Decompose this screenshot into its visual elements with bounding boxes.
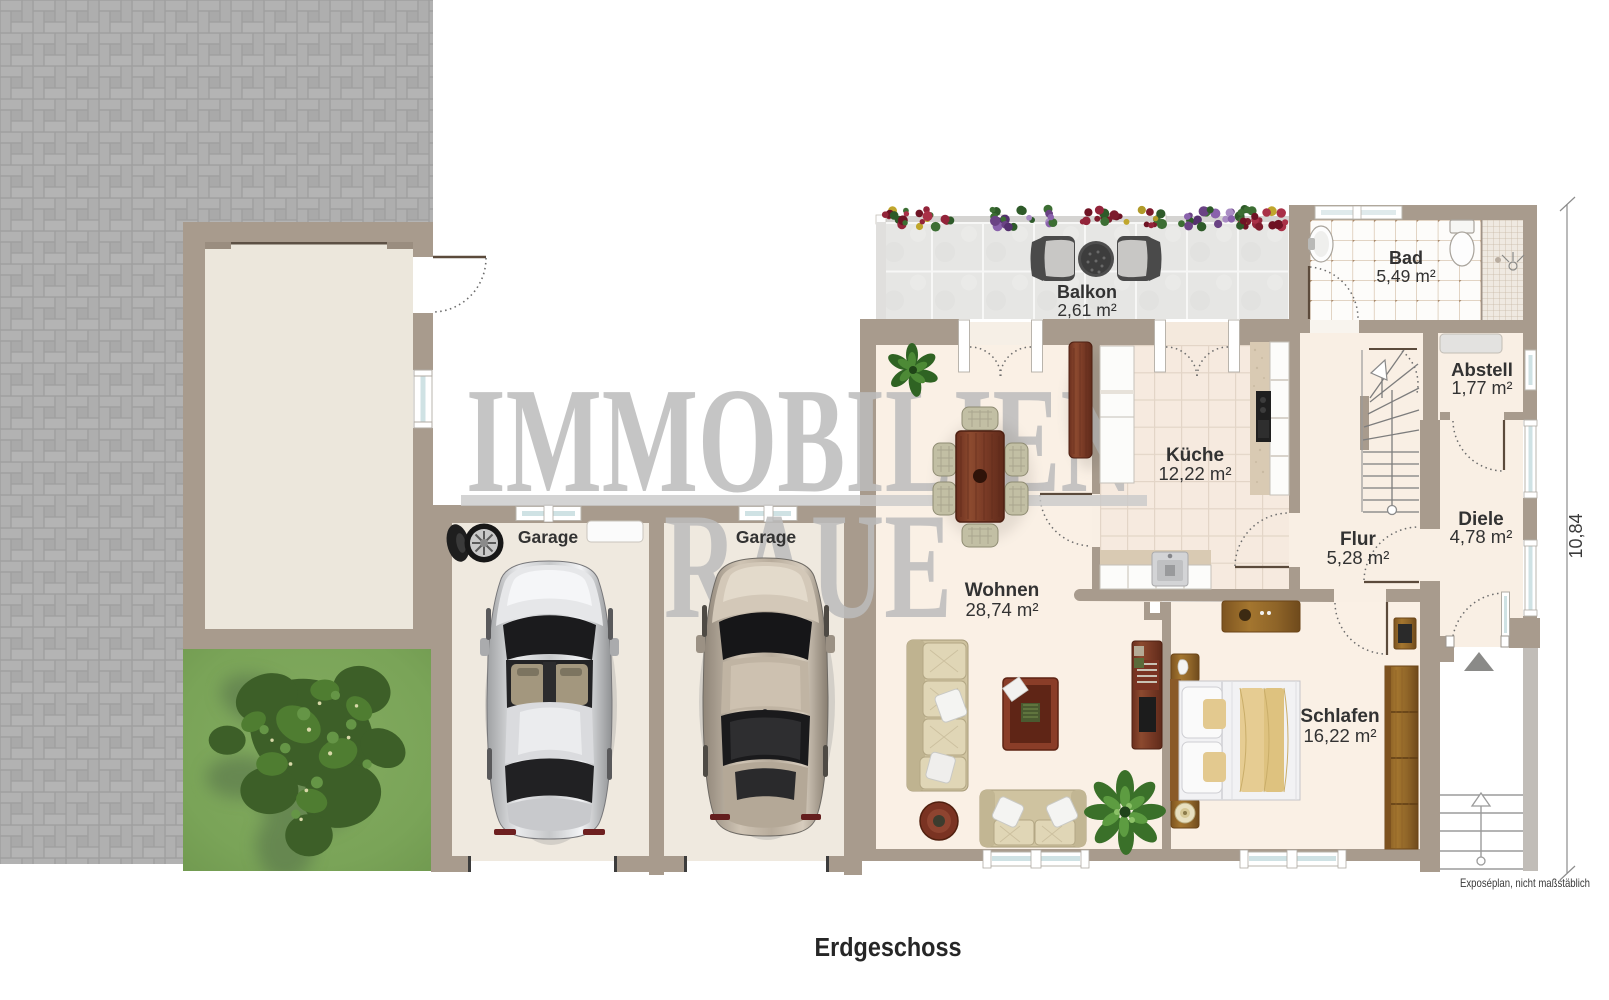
svg-text:Garage: Garage — [518, 527, 579, 547]
svg-text:Balkon: Balkon — [1057, 282, 1117, 302]
svg-text:Garage: Garage — [736, 527, 797, 547]
svg-text:28,74 m²: 28,74 m² — [965, 599, 1038, 620]
svg-text:2,61 m²: 2,61 m² — [1057, 300, 1116, 320]
svg-text:4,78 m²: 4,78 m² — [1450, 526, 1513, 547]
svg-text:Abstell: Abstell — [1451, 359, 1513, 380]
svg-text:Erdgeschoss: Erdgeschoss — [815, 934, 962, 962]
svg-text:Bad: Bad — [1389, 248, 1423, 268]
svg-text:16,22 m²: 16,22 m² — [1303, 725, 1376, 746]
svg-text:10,84: 10,84 — [1566, 513, 1586, 558]
svg-text:Schlafen: Schlafen — [1300, 706, 1379, 727]
svg-text:5,28 m²: 5,28 m² — [1327, 547, 1390, 568]
svg-text:12,22 m²: 12,22 m² — [1158, 463, 1231, 484]
svg-text:Exposéplan, nicht maßstäblich: Exposéplan, nicht maßstäblich — [1460, 876, 1590, 890]
svg-text:5,49 m²: 5,49 m² — [1376, 266, 1435, 286]
svg-text:1,77 m²: 1,77 m² — [1451, 378, 1512, 398]
svg-text:Wohnen: Wohnen — [965, 580, 1040, 601]
